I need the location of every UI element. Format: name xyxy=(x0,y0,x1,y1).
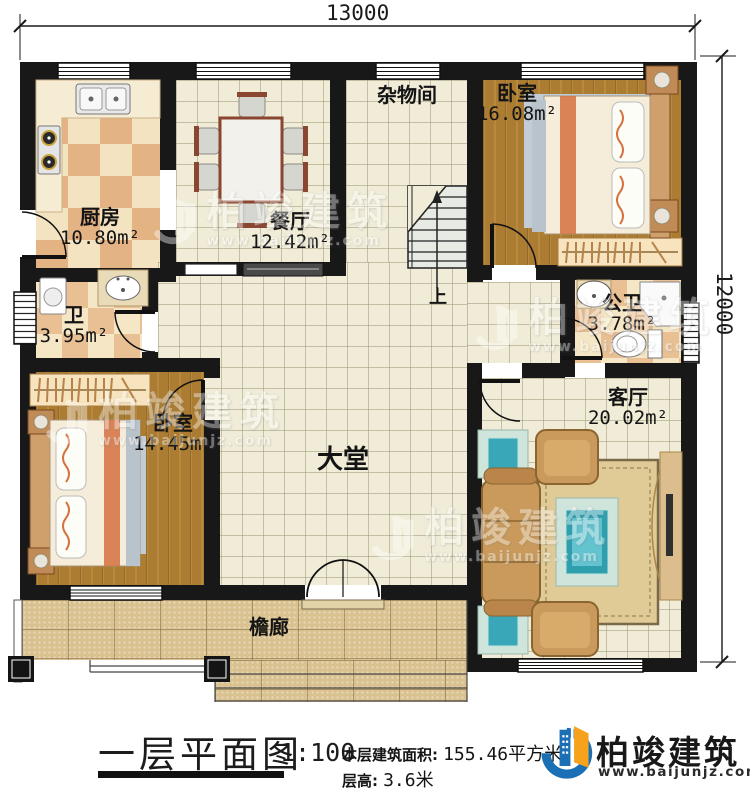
sofa xyxy=(482,480,540,604)
storage-window xyxy=(376,63,440,79)
bedroom-left-area: 14.45m² xyxy=(118,434,228,455)
floor-height-line: 层高: 3.6米 xyxy=(342,766,434,792)
dining-sideboard xyxy=(243,263,323,276)
dining-area: 12.42m² xyxy=(235,232,345,253)
floor-area-label: 本层建筑面积: xyxy=(342,746,438,764)
kitchen-furniture xyxy=(36,80,160,212)
kitchen-area: 10.80m² xyxy=(45,228,155,249)
dining-window xyxy=(196,63,291,79)
bedroom-top-area: 16.08m² xyxy=(462,104,572,125)
dimension-width: 13000 xyxy=(326,1,389,25)
plan-title-underline xyxy=(98,771,284,778)
public-bath-name: 公卫 xyxy=(574,292,670,314)
public-bath-window xyxy=(683,303,699,363)
bedroom-left-furniture xyxy=(28,374,150,574)
storage-label: 杂物间 xyxy=(352,84,462,106)
kitchen-name: 厨房 xyxy=(45,206,155,228)
living-name: 客厅 xyxy=(572,386,684,408)
bath-label: 卫 3.95m² xyxy=(28,304,120,347)
living-area: 20.02m² xyxy=(572,408,684,429)
dining-label: 餐厅 12.42m² xyxy=(235,210,345,253)
porch-name: 檐廊 xyxy=(232,616,306,638)
bath-door xyxy=(115,312,155,352)
kitchen-label: 厨房 10.80m² xyxy=(45,206,155,249)
pillow xyxy=(56,428,86,490)
bedroom-left-label: 卧室 14.45m² xyxy=(118,412,228,455)
entrance-step xyxy=(302,600,384,609)
hall-name: 大堂 xyxy=(300,446,386,475)
stairs-up-label: 上 xyxy=(429,283,447,309)
pillow xyxy=(56,496,86,558)
bath-name: 卫 xyxy=(28,304,120,326)
floor-height-label: 层高: xyxy=(342,772,378,790)
bedroom-left-window xyxy=(70,586,162,600)
bedroom-top-label: 卧室 16.08m² xyxy=(462,82,572,125)
floor-height-value: 3.6米 xyxy=(383,770,434,791)
bedroom-left-name: 卧室 xyxy=(118,412,228,434)
living-label: 客厅 20.02m² xyxy=(572,386,684,429)
floor-plan-page: 厨房 10.80m² 餐厅 12.42m² 杂物间 卧室 16.08m² 卫 3… xyxy=(0,0,750,798)
dining-name: 餐厅 xyxy=(235,210,345,232)
dimension-height: 12000 xyxy=(712,272,736,335)
stairs xyxy=(408,186,467,288)
bath-area: 3.95m² xyxy=(28,326,120,347)
tv xyxy=(666,494,673,556)
porch-label: 檐廊 xyxy=(232,616,306,638)
brand-website: www.baijunjz.com xyxy=(598,764,750,780)
living-furniture xyxy=(478,430,682,656)
hall-label: 大堂 xyxy=(300,446,386,475)
kitchen-window xyxy=(58,63,130,79)
plan-title: 一层平面图 xyxy=(98,724,303,778)
public-bath-area: 3.78m² xyxy=(574,314,670,335)
bedroom-top-door xyxy=(492,224,536,268)
brand-logo-icon xyxy=(536,722,594,790)
dining-furniture xyxy=(194,92,308,228)
floor-area-line: 本层建筑面积: 155.46平方米 xyxy=(342,740,562,766)
living-door xyxy=(480,381,520,421)
bedroom-top-window xyxy=(521,63,644,79)
public-bath-label: 公卫 3.78m² xyxy=(574,292,670,335)
dining-table xyxy=(220,118,282,202)
living-window xyxy=(518,659,643,672)
storage-name: 杂物间 xyxy=(352,84,462,106)
dining-pass-through xyxy=(185,264,237,275)
bedroom-top-name: 卧室 xyxy=(462,82,572,104)
